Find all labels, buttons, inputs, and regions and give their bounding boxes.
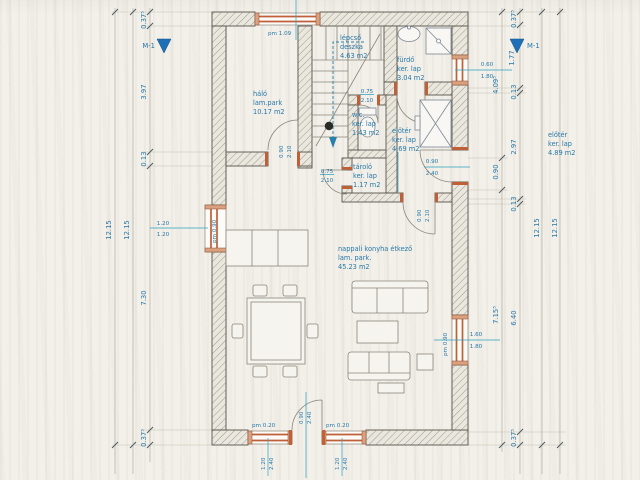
side-table: [417, 354, 433, 370]
room-lepcso-name: lépcső: [340, 33, 361, 42]
wall-left-lower: [212, 252, 226, 430]
room-furdo-name: fürdő: [397, 55, 414, 64]
wall-top-left: [212, 12, 255, 26]
stairs-newel: [325, 122, 333, 130]
kitchen-counter: [226, 230, 308, 266]
wall-bottom-left: [212, 430, 248, 445]
dim-right-inner-0: 4.09⁵: [492, 76, 500, 94]
bottom-window-left-pm: pm 0.20: [252, 423, 276, 429]
sofa-upper: [352, 281, 428, 313]
note-eloter-finish: ker. lap: [548, 140, 572, 148]
section-marker-right-label: M-1: [527, 42, 540, 50]
wall-right-2: [452, 85, 468, 150]
stairs-arrow: [329, 137, 337, 148]
bottom-window-left-w: 1.20: [261, 457, 267, 470]
dim-left-chain-2: 0.13: [140, 151, 148, 166]
note-eloter-area: 4.89 m2: [548, 149, 575, 157]
room-eloter-name: előtér: [392, 126, 412, 135]
tarolo-door-w: 0.75: [321, 169, 334, 175]
sofa-lower: [348, 352, 410, 380]
room-eloter-area: 4.69 m2: [392, 145, 419, 153]
wall-bottom-right: [366, 430, 468, 445]
room-wc-name: w.c.: [352, 111, 365, 119]
room-nappali-area: 45.23 m2: [338, 263, 370, 271]
bottom-window-right-w: 1.20: [335, 457, 341, 470]
shower: [426, 28, 451, 54]
wc-door-h: 2.10: [361, 98, 374, 104]
section-marker-left-icon: [157, 39, 171, 53]
wc-door-w: 0.75: [361, 89, 374, 95]
tv-stand: [378, 383, 404, 393]
room-furdo-finish: ker. lap: [397, 65, 421, 73]
dim-right-chain-5: 6.40: [510, 310, 518, 325]
dim-right-inner-1: 0.90: [492, 164, 500, 179]
coffee-table: [357, 321, 398, 343]
left-window-pm: pm 0.90: [212, 219, 218, 243]
furniture: [226, 230, 433, 393]
note-eloter-name: előtér: [548, 130, 568, 139]
room-tarolo-area: 1.17 m2: [353, 181, 380, 189]
dim-total-left-1: 12.15: [105, 220, 113, 239]
right-upper-window-w: 0.60: [481, 62, 494, 68]
dim-right-chain-4: 0.13: [510, 196, 518, 211]
right-lower-window-pm: pm 0.90: [443, 332, 449, 356]
floor-plan-drawing: háló lam.park 10.17 m2 lépcső deszka 4.6…: [0, 0, 640, 480]
bottom-window-left-h: 2.40: [269, 457, 275, 470]
dining-table: [247, 298, 305, 364]
wall-left-upper: [212, 26, 226, 205]
left-window-h: 1.20: [157, 232, 170, 238]
dim-right-chain-0: 0.37⁵: [510, 10, 518, 28]
room-wc-area: 1.43 m2: [352, 129, 379, 137]
room-wc-finish: ker. lap: [352, 120, 376, 128]
bottom-window-left: [248, 431, 292, 444]
wall-stairs-furdo: [384, 26, 397, 82]
dim-left-chain-1: 3.97: [140, 84, 148, 99]
eloter-opening-w: 0.90: [417, 209, 423, 222]
dim-left-chain-0: 0.37⁵: [140, 11, 148, 29]
dim-right-chain-2: 0.13: [510, 84, 518, 99]
halo-door-h: 2.10: [287, 145, 293, 158]
top-window: [255, 13, 320, 25]
wall-right-3: [452, 182, 468, 315]
dim-right-inner-2: 7.15⁵: [492, 306, 500, 324]
eloter-opening-h: 2.10: [425, 209, 431, 222]
right-lower-window-h: 1.80: [470, 344, 483, 350]
windows: [205, 13, 468, 444]
bottom-window-right: [322, 431, 366, 444]
wall-hall-east: [386, 95, 397, 193]
dim-right-chain-1: 1.77: [508, 50, 516, 65]
room-nappali-name: nappali konyha étkező: [338, 244, 412, 253]
room-lepcso-area: 4.63 m2: [340, 52, 367, 60]
entry-door-arc: [420, 150, 452, 182]
room-tarolo-finish: ker. lap: [353, 172, 377, 180]
bottom-door-w: 0.90: [299, 411, 305, 424]
entry-door-h: 2.40: [426, 171, 439, 177]
wall-top-right: [320, 12, 468, 26]
dim-right-chain-3: 2.97: [510, 139, 518, 154]
halo-door-arc: [268, 120, 298, 150]
wall-halo-south-a: [226, 152, 268, 166]
dim-left-chain-4: 0.37⁵: [140, 429, 148, 447]
room-lepcso-finish: deszka: [340, 43, 363, 51]
walls: [212, 12, 468, 445]
room-tarolo-name: tároló: [353, 163, 372, 171]
right-lower-window-w: 1.60: [470, 332, 483, 338]
room-halo-finish: lam.park: [253, 99, 282, 107]
room-halo-area: 10.17 m2: [253, 108, 285, 116]
floor-plan-sheet: háló lam.park 10.17 m2 lépcső deszka 4.6…: [0, 0, 640, 480]
room-eloter-finish: ker. lap: [392, 136, 416, 144]
wall-halo-east: [298, 26, 312, 168]
top-window-pm: pm 1.09: [268, 31, 292, 37]
dim-total-left-2: 12.15: [123, 220, 131, 239]
wall-furdo-south-b: [425, 82, 452, 95]
wardrobe-closet: [415, 100, 451, 147]
tarolo-door-h: 2.10: [321, 178, 334, 184]
left-window-w: 1.20: [157, 221, 170, 227]
wall-right-1: [452, 26, 468, 55]
dim-total-right-2: 12.15: [551, 218, 559, 237]
dim-left-chain-3: 7.30: [140, 290, 148, 305]
bottom-door-h: 2.40: [307, 411, 313, 424]
room-furdo-area: 3.04 m2: [397, 74, 424, 82]
wall-halo-south-b: [298, 152, 312, 166]
room-halo-name: háló: [253, 90, 267, 98]
wall-hall-south-a: [342, 193, 403, 202]
labels: háló lam.park 10.17 m2 lépcső deszka 4.6…: [105, 10, 575, 470]
dim-total-right-1: 12.15: [533, 218, 541, 237]
room-nappali-finish: lam. park.: [338, 254, 371, 262]
halo-door-w: 0.90: [279, 145, 285, 158]
entry-door-w: 0.90: [426, 159, 439, 165]
bottom-window-right-pm: pm 0.20: [326, 423, 350, 429]
dim-right-chain-6: 0.37⁵: [510, 429, 518, 447]
bottom-window-right-h: 2.40: [343, 457, 349, 470]
wall-right-4: [452, 365, 468, 430]
section-marker-left-label: M-1: [142, 42, 155, 50]
